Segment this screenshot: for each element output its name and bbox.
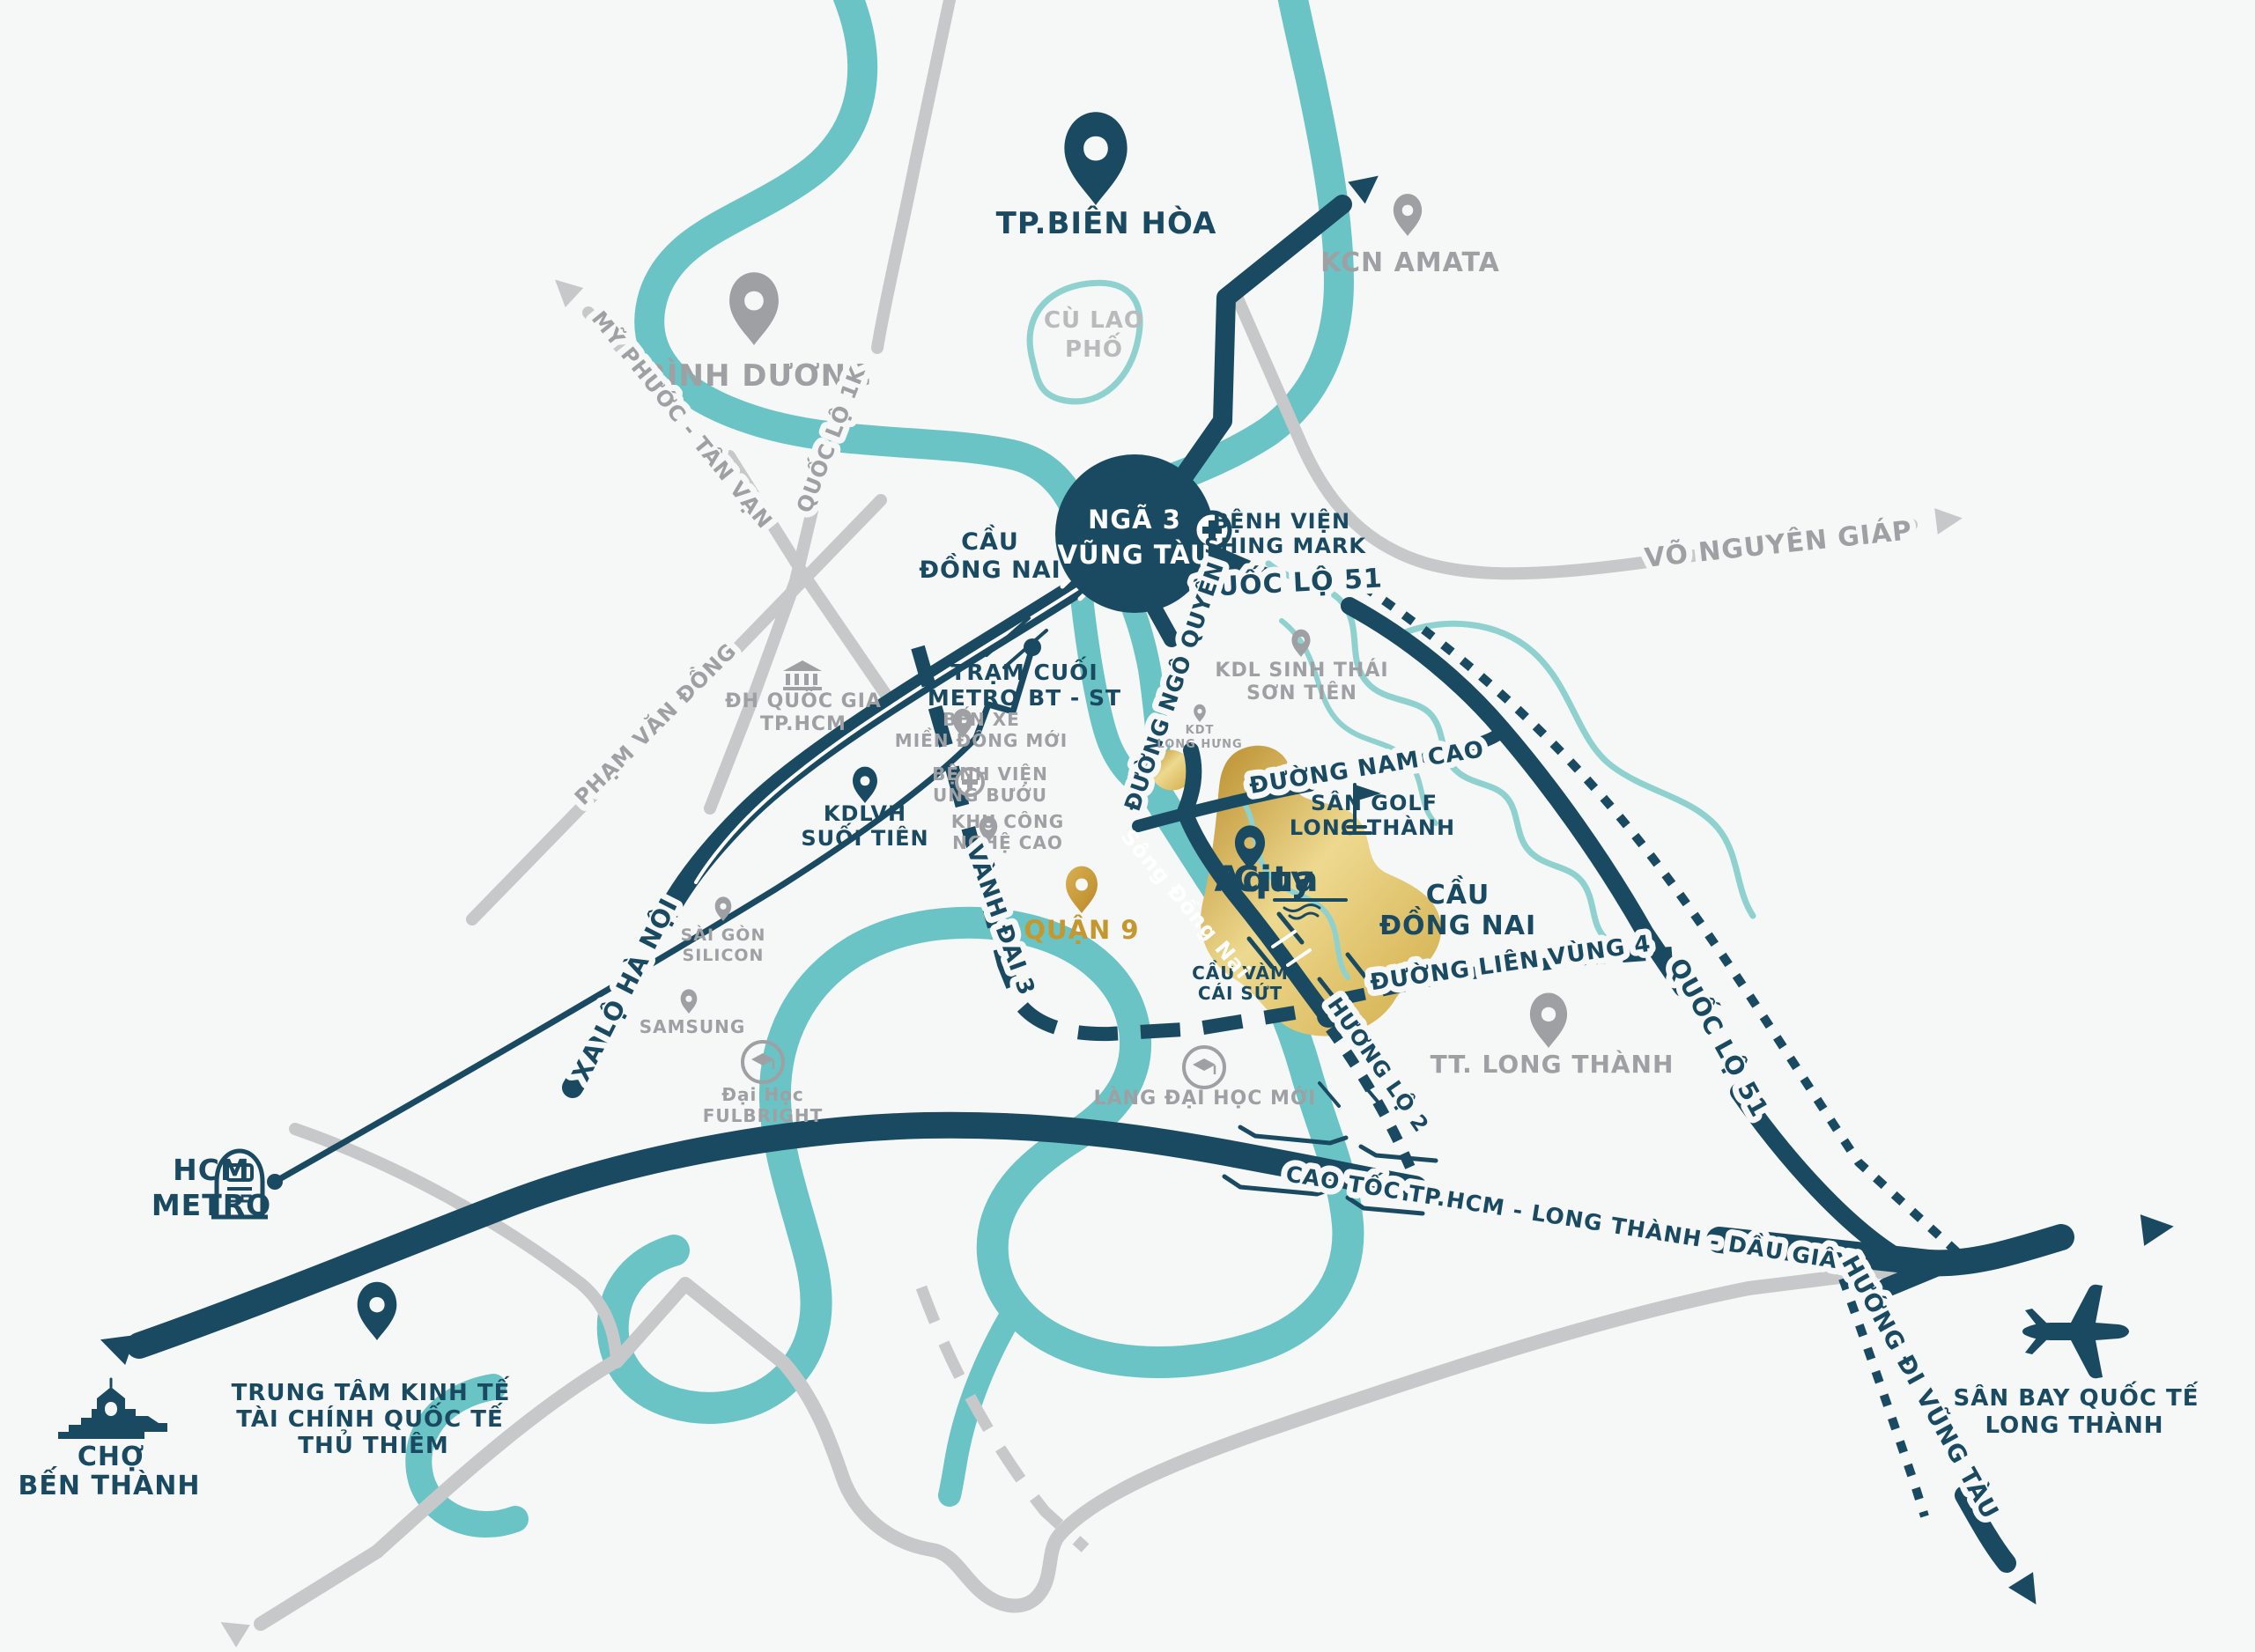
label-thu-thiem-3: THỦ THIÊM [298,1427,448,1459]
label-ben-xe-1: BẾN XE [943,707,1020,730]
aqua-city-location-map: TP.BIÊN HÒA KCN AMATA BÌNH DƯƠNG CÙ LAO … [0,0,2255,1652]
label-cho-ben-thanh-2: BẾN THÀNH [18,1466,201,1501]
label-cau-vam-2: CÁI SỨT [1198,983,1283,1004]
university-icon [783,660,822,690]
label-hcm-metro-2: METRO [152,1188,271,1222]
label-san-bay-2: LONG THÀNH [1985,1411,2163,1439]
label-lang-dai-hoc-moi: LÀNG ĐẠI HỌC MỚI [1094,1087,1317,1110]
label-fulbright-1: Đại Học [721,1084,803,1105]
label-kdlvh-1: KDLVH [824,801,906,826]
graduation-cap-lang-dai-hoc-icon [1184,1047,1224,1088]
label-cu-lao-pho-1: CÙ LAO [1044,306,1144,334]
label-khu-cong-nghe-cao-1: KHU CÔNG [951,811,1064,832]
label-quan-9: QUẬN 9 [1024,915,1139,945]
ben-thanh-market-icon [58,1379,167,1439]
label-cho-ben-thanh-1: CHỢ [78,1442,144,1472]
label-cau-dong-nai-w-1: CẦU [961,525,1019,556]
arrow-cao-toc-east [2140,1211,2176,1246]
arrow-southwest [214,1611,250,1647]
label-tram-cuoi-2: METRO BT - ST [928,685,1121,711]
road-ngo-quyen [1154,608,1172,639]
arrow-cao-toc-west [95,1324,136,1365]
arrow-vo-nguyen-giap [1934,505,1963,534]
label-sai-gon-silicon-2: SILICON [683,946,765,965]
label-cau-dong-nai-e-1: CẦU [1426,875,1490,911]
pin-thu-thiem [358,1282,397,1340]
arrow-my-phuoc-tan-van [546,270,583,307]
label-cau-dong-nai-w-2: ĐỒNG NAI [919,552,1061,584]
arrow-bien-hoa [1348,165,1386,203]
label-kdt-long-hung-1: KDT [1186,724,1215,737]
map-labels: TP.BIÊN HÒA KCN AMATA BÌNH DƯƠNG CÙ LAO … [18,205,2200,1524]
pin-tp-bien-hoa [1064,112,1127,205]
label-san-bay-1: SÂN BAY QUỐC TẾ [1954,1380,2200,1412]
label-cau-dong-nai-e-2: ĐỒNG NAI [1379,905,1536,941]
label-kcn-amata: KCN AMATA [1320,247,1500,278]
label-ben-xe-2: MIỀN ĐÔNG MỚI [895,728,1068,751]
pin-kcn-amata [1394,194,1422,236]
pin-kdt-long-hung [1194,704,1206,722]
arrow-vung-tau [2008,1572,2048,1611]
label-nga-3-1: NGÃ 3 [1088,505,1181,535]
aqua-city-logo-text-2: City [1233,859,1314,900]
label-xa-lo-ha-noi: XA LỘ HÀ NỘI [566,893,684,1086]
label-dh-quoc-gia-1: ĐH QUỐC GIA [725,687,882,712]
pin-binh-duong [729,272,779,345]
map-canvas: TP.BIÊN HÒA KCN AMATA BÌNH DƯƠNG CÙ LAO … [0,0,2255,1652]
label-san-golf-2: LONG THÀNH [1290,815,1455,840]
label-ung-buou-1: BỆNH VIỆN [932,763,1048,785]
pin-kdlvh-suoi-tien [853,767,877,803]
label-shing-mark-1: BỆNH VIỆN [1213,507,1350,534]
label-tt-long-thanh: TT. LONG THÀNH [1431,1049,1675,1079]
label-samsung: SAMSUNG [640,1016,746,1037]
label-thu-thiem-2: TÀI CHÍNH QUỐC TẾ [236,1401,504,1433]
label-kdl-son-tien-1: KDL SINH THÁI [1215,659,1388,682]
pin-samsung [681,989,698,1014]
label-vo-nguyen-giap: VÕ NGUYÊN GIÁP [1643,513,1914,574]
label-kdl-son-tien-2: SƠN TIÊN [1246,682,1357,704]
pin-quan-9 [1066,867,1098,913]
label-shing-mark-2: SHING MARK [1204,534,1366,558]
label-ung-buou-2: UNG BƯỚU [933,785,1047,806]
road-quoc-lo-1k [877,0,950,348]
label-cao-toc: CAO TỐC TP.HCM - LONG THÀNH - DẦU GIÂY [1284,1157,1855,1275]
label-quoc-lo-51-se: QUỐC LỘ 51 [1663,951,1778,1122]
label-hcm-metro-1: HCM [173,1153,250,1187]
label-nga-3-2: VŨNG TÀU [1058,540,1212,570]
label-cu-lao-pho-2: PHỐ [1065,331,1123,363]
label-kdlvh-2: SUỐI TIÊN [801,822,928,851]
label-fulbright-2: FULBRIGHT [703,1105,824,1126]
label-sai-gon-silicon-1: SÀI GÒN [681,924,766,945]
label-dh-quoc-gia-2: TP.HCM [760,713,847,735]
airplane-icon [2022,1285,2129,1379]
label-tram-cuoi-1: TRẠM CUỐI [950,656,1098,685]
label-tp-bien-hoa: TP.BIÊN HÒA [996,205,1217,241]
label-kdt-long-hung-2: LONG HƯNG [1157,738,1242,751]
pin-tt-long-thanh [1530,992,1567,1048]
label-san-golf-1: SÂN GOLF [1311,790,1438,815]
label-thu-thiem-1: TRUNG TÂM KINH TẾ [232,1375,511,1406]
